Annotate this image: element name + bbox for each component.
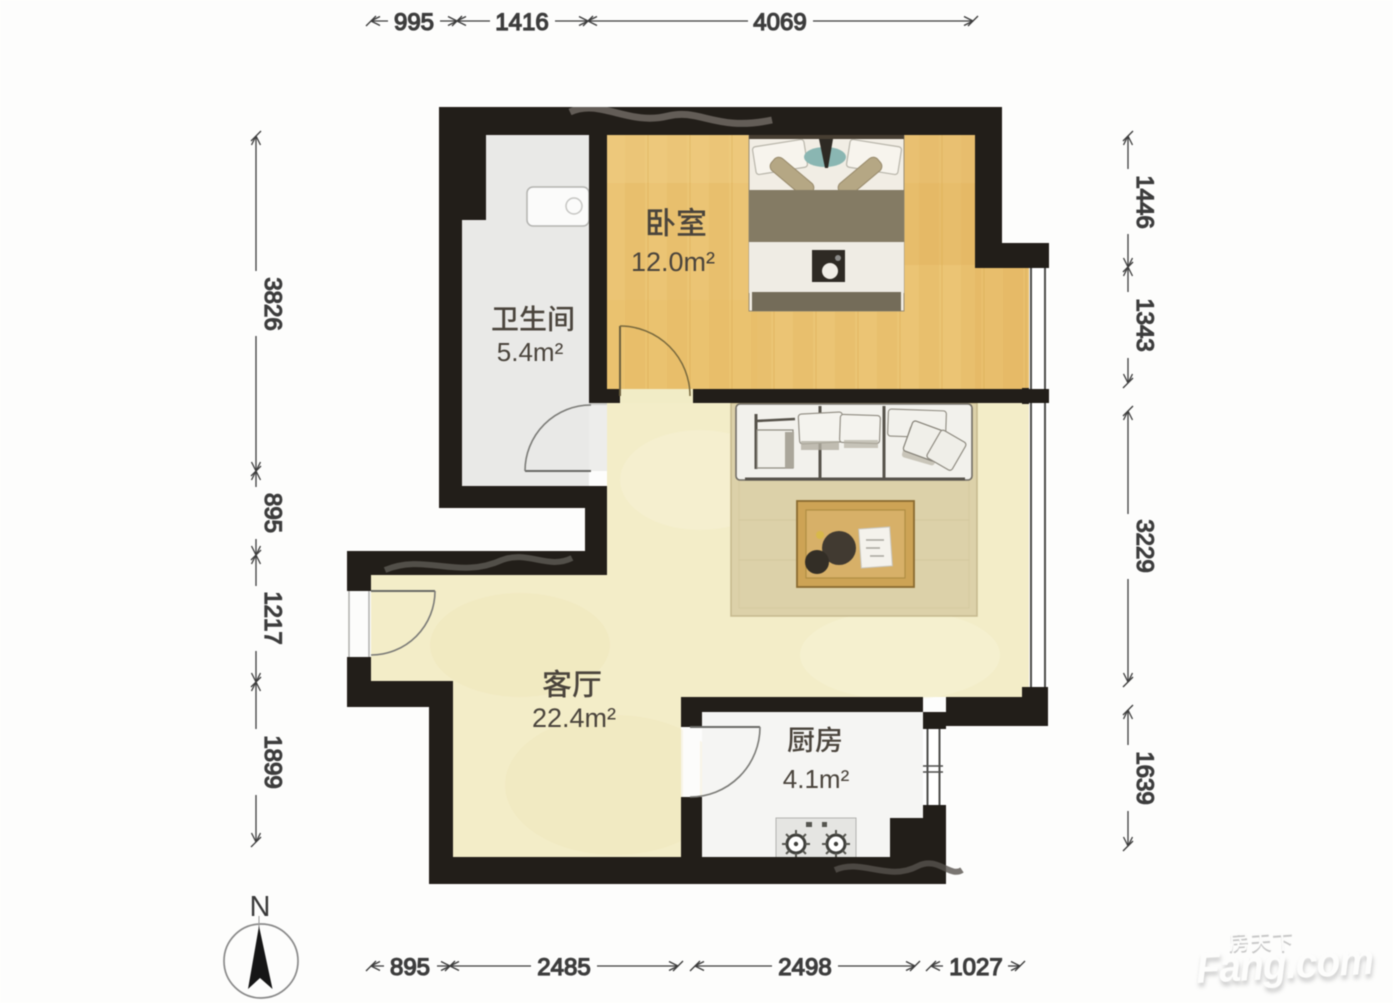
svg-text:2485: 2485 xyxy=(537,954,590,981)
svg-text:895: 895 xyxy=(259,493,286,533)
svg-text:3229: 3229 xyxy=(1131,519,1158,572)
svg-text:1899: 1899 xyxy=(259,735,286,788)
svg-text:1027: 1027 xyxy=(949,954,1002,981)
svg-text:5.4m²: 5.4m² xyxy=(497,337,564,367)
svg-text:22.4m²: 22.4m² xyxy=(532,703,616,733)
svg-text:1217: 1217 xyxy=(259,591,286,644)
svg-text:4.1m²: 4.1m² xyxy=(783,764,850,794)
svg-text:1343: 1343 xyxy=(1131,298,1158,351)
svg-text:1446: 1446 xyxy=(1131,175,1158,228)
svg-text:2498: 2498 xyxy=(778,954,831,981)
svg-text:895: 895 xyxy=(390,954,430,981)
svg-text:4069: 4069 xyxy=(753,9,806,36)
svg-text:N: N xyxy=(250,891,271,923)
svg-text:Fang.com: Fang.com xyxy=(1195,936,1374,993)
svg-text:1639: 1639 xyxy=(1131,751,1158,804)
svg-text:3826: 3826 xyxy=(259,277,286,330)
svg-text:12.0m²: 12.0m² xyxy=(631,247,715,277)
svg-text:995: 995 xyxy=(394,9,434,36)
svg-text:1416: 1416 xyxy=(495,9,548,36)
